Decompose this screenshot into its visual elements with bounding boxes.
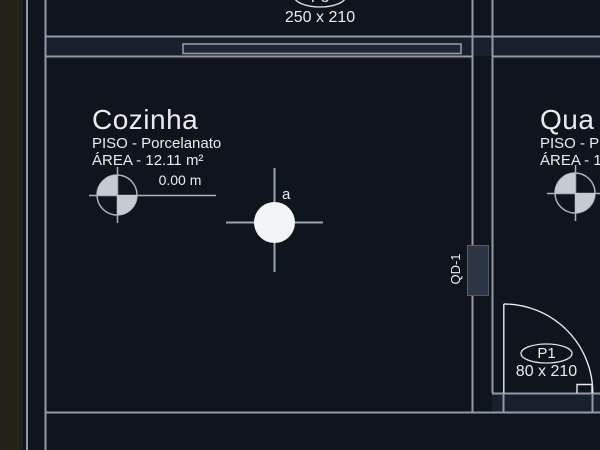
- room-cozinha-name[interactable]: Cozinha: [92, 105, 198, 136]
- wall-cavity-fills: [45, 38, 600, 413]
- plan-linework: [0, 0, 600, 450]
- floor-plan-canvas: P3 250 x 210 Cozinha PISO - Porcelanato …: [0, 0, 600, 450]
- room-quarto-area[interactable]: ÁREA - 1: [540, 153, 600, 170]
- door-p3-label[interactable]: P3: [300, 0, 340, 7]
- level-marker-quadrant-br: [117, 195, 137, 215]
- door-p3-size[interactable]: 250 x 210: [270, 9, 370, 27]
- electrical-panel-label[interactable]: QD-1: [449, 239, 465, 299]
- level-value[interactable]: 0.00 m: [150, 173, 210, 188]
- room-quarto-floor[interactable]: PISO - P: [540, 136, 599, 153]
- door-p3-leaf[interactable]: [183, 44, 461, 54]
- room-cozinha-area[interactable]: ÁREA - 12.11 m²: [92, 153, 203, 170]
- bottom-wall-cavity: [492, 395, 600, 413]
- light-fixture[interactable]: [226, 168, 323, 272]
- light-fixture-label[interactable]: a: [282, 187, 290, 204]
- level-marker-quadrant-br: [575, 193, 595, 213]
- room-cozinha-floor[interactable]: PISO - Porcelanato: [92, 136, 221, 153]
- room-quarto-name[interactable]: Qua: [540, 105, 594, 136]
- door-p1-stop: [577, 385, 592, 394]
- level-marker-quarto[interactable]: [547, 165, 600, 221]
- walls[interactable]: [27, 0, 600, 450]
- level-marker-quadrant-tl: [555, 173, 575, 193]
- door-p1-size[interactable]: 80 x 210: [506, 363, 587, 381]
- level-marker-quadrant-tl: [97, 175, 117, 195]
- light-fixture-circle: [254, 202, 295, 243]
- electrical-panel-qd1[interactable]: [468, 246, 489, 296]
- door-p1-label[interactable]: P1: [526, 346, 567, 363]
